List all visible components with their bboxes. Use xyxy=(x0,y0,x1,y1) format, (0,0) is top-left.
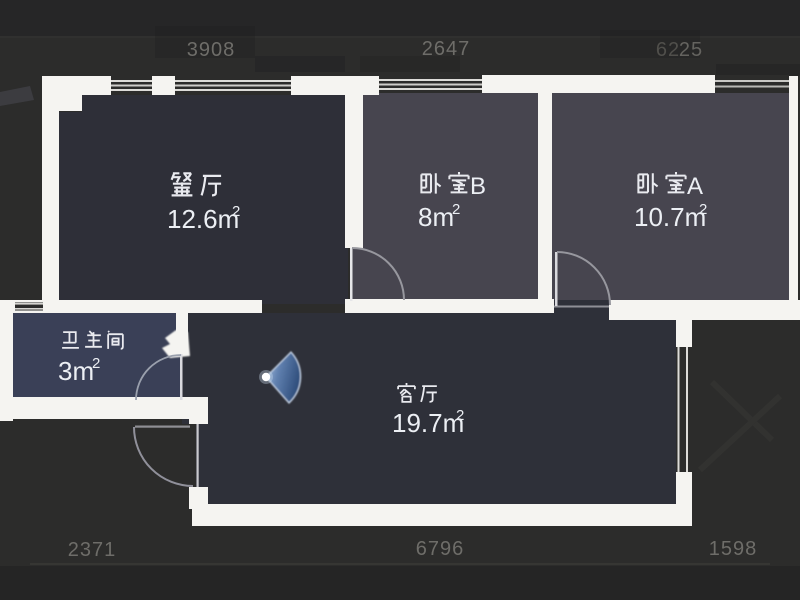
svg-text:8m: 8m xyxy=(418,202,454,232)
svg-text:2: 2 xyxy=(456,407,464,424)
svg-text:3908: 3908 xyxy=(187,39,236,61)
svg-text:2: 2 xyxy=(92,355,100,372)
svg-text:25: 25 xyxy=(679,39,703,61)
svg-text:3m: 3m xyxy=(58,356,94,386)
svg-text:10.7m: 10.7m xyxy=(634,202,706,232)
svg-text:2: 2 xyxy=(452,201,460,218)
svg-text:6796: 6796 xyxy=(416,538,465,560)
svg-text:19.7m: 19.7m xyxy=(392,408,464,438)
svg-text:B: B xyxy=(470,173,486,200)
svg-text:62: 62 xyxy=(656,39,680,61)
svg-text:A: A xyxy=(687,173,703,200)
svg-text:2371: 2371 xyxy=(68,539,117,561)
svg-text:2647: 2647 xyxy=(422,38,471,60)
svg-text:2: 2 xyxy=(699,201,707,218)
svg-text:1598: 1598 xyxy=(709,538,758,560)
svg-text:2: 2 xyxy=(232,203,240,220)
svg-text:12.6m: 12.6m xyxy=(167,204,239,234)
